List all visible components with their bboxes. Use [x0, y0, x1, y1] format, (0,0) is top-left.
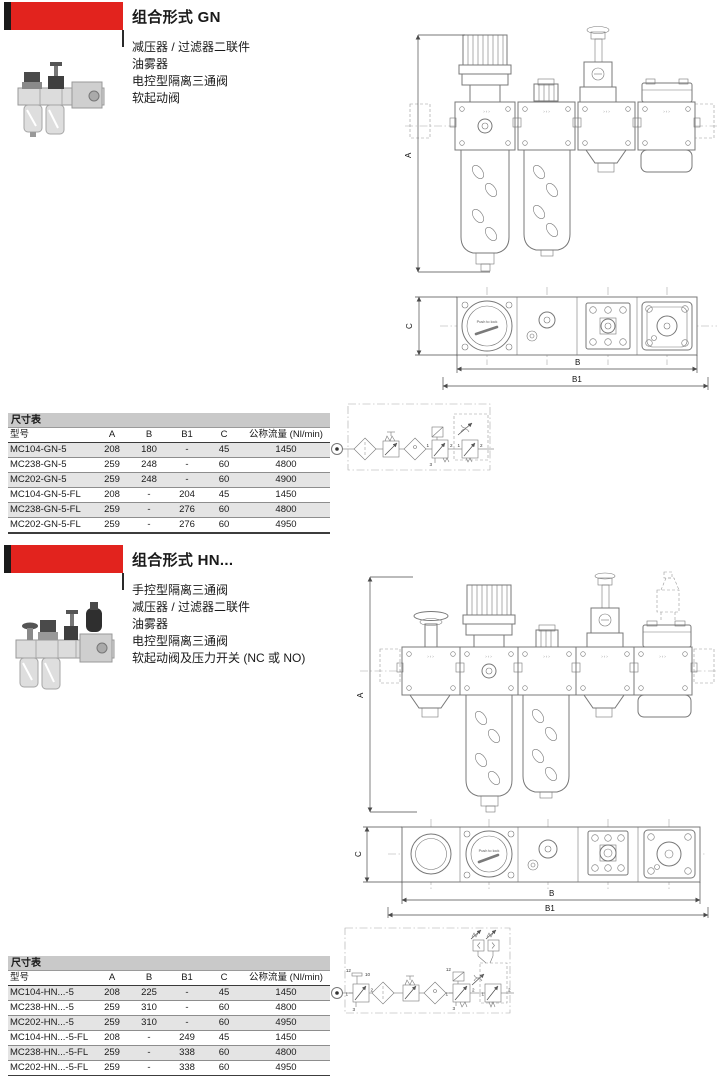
port-label: 1 — [445, 992, 448, 997]
cell: 60 — [206, 1061, 242, 1076]
pneumatic-circuit-gn: 1 2 3 1 2 — [328, 396, 496, 476]
cell: 60 — [206, 503, 242, 518]
section-title-hn: 组合形式 HN... — [132, 549, 233, 570]
table-caption: 尺寸表 — [8, 413, 330, 428]
regulator-symbol — [383, 432, 399, 457]
cell-model: MC202-GN-5-FL — [8, 518, 94, 534]
cell: 1450 — [242, 443, 330, 458]
cell: 225 — [130, 986, 168, 1001]
cell: 60 — [206, 1046, 242, 1061]
flow-direction-icon: ››› — [483, 109, 491, 114]
gn-dimension-table: 尺寸表 型号 A B B1 C 公称流量 (Nl/min) MC104-GN-5… — [8, 413, 330, 534]
table-row: MC202-GN-5 259 248 - 60 4900 — [8, 473, 330, 488]
description-line: 电控型隔离三通阀 — [132, 633, 305, 650]
cell: 248 — [130, 458, 168, 473]
cell: - — [130, 1046, 168, 1061]
cell-model: MC202-HN...-5-FL — [8, 1061, 94, 1076]
cell: 4800 — [242, 1046, 330, 1061]
cell: 259 — [94, 503, 130, 518]
cell-model: MC202-GN-5 — [8, 473, 94, 488]
cell: 310 — [130, 1016, 168, 1031]
regulator-symbol — [403, 976, 419, 1001]
col-header: 公称流量 (Nl/min) — [242, 971, 330, 986]
flow-direction-icon: ››› — [663, 109, 671, 114]
port-label: 10 — [365, 972, 371, 977]
flow-direction-icon: ››› — [659, 654, 667, 659]
cell: 259 — [94, 458, 130, 473]
cell: 208 — [94, 488, 130, 503]
cell: 4950 — [242, 1016, 330, 1031]
cell: - — [168, 443, 206, 458]
cell: 276 — [168, 503, 206, 518]
cell: 310 — [130, 1001, 168, 1016]
cell-model: MC104-HN...-5-FL — [8, 1031, 94, 1046]
col-header: 型号 — [8, 971, 94, 986]
description-line: 减压器 / 过滤器二联件 — [132, 39, 250, 56]
hn-dimension-table: 尺寸表 型号 A B B1 C 公称流量 (Nl/min) MC104-HN..… — [8, 956, 330, 1076]
table-header-row: 型号 A B B1 C 公称流量 (Nl/min) — [8, 971, 330, 986]
dimension-b1: B1 — [443, 375, 708, 390]
cell: - — [168, 986, 206, 1001]
table-row: MC238-HN...-5 259 310 - 60 4800 — [8, 1001, 330, 1016]
cell: 4950 — [242, 518, 330, 534]
dimension-a: A — [404, 35, 490, 272]
manual-valve-symbol: 12 10 1 2 3 — [345, 968, 373, 1012]
cell: 208 — [94, 443, 130, 458]
hn-front-view: ››› ››› ››› ››› ››› — [356, 572, 717, 812]
cell: 1450 — [242, 1031, 330, 1046]
flow-direction-icon: ››› — [543, 109, 551, 114]
hn-bottom-view: Push to lock — [355, 819, 708, 918]
description-line: 软起动阀及压力开关 (NC 或 NO) — [132, 650, 305, 667]
table-row: MC104-HN...-5 208 225 - 45 1450 — [8, 986, 330, 1001]
port-label: 2 — [450, 443, 453, 448]
product-photo-gn — [16, 56, 108, 138]
cell: - — [168, 1016, 206, 1031]
port-label: 2 — [472, 988, 475, 993]
banner-red-block — [11, 2, 123, 30]
col-header: B1 — [168, 428, 206, 443]
col-header: B — [130, 428, 168, 443]
gn-bottom-view: Push to lock — [405, 287, 717, 390]
gn-front-view: ››› ››› ››› ››› — [404, 27, 717, 273]
port-label: 12 — [446, 967, 452, 972]
banner-black-block — [4, 545, 11, 573]
dim-label-b1: B1 — [572, 375, 582, 384]
table-row: MC202-HN...-5-FL 259 - 338 60 4950 — [8, 1061, 330, 1076]
port-label: 1 — [457, 443, 460, 448]
cell: 4900 — [242, 473, 330, 488]
product-photo-hn — [14, 590, 118, 692]
dim-label-c: C — [355, 851, 363, 857]
cell: 1450 — [242, 488, 330, 503]
cell: 259 — [94, 1046, 130, 1061]
flow-direction-icon: ››› — [427, 654, 435, 659]
description-line: 减压器 / 过滤器二联件 — [132, 599, 305, 616]
valve-3-2-symbol: 1 2 3 — [426, 427, 453, 467]
cell: 249 — [168, 1031, 206, 1046]
table-row: MC238-HN...-5-FL 259 - 338 60 4800 — [8, 1046, 330, 1061]
dimension-b1: B1 — [388, 904, 708, 918]
col-header: B1 — [168, 971, 206, 986]
cell: 259 — [94, 518, 130, 534]
table-header-row: 型号 A B B1 C 公称流量 (Nl/min) — [8, 428, 330, 443]
description-line: 软起动阀 — [132, 90, 250, 107]
dim-label-b1: B1 — [545, 904, 555, 913]
col-header: B — [130, 971, 168, 986]
col-header: C — [206, 971, 242, 986]
lubricator-symbol — [424, 982, 446, 1004]
cell: 248 — [130, 473, 168, 488]
dimension-b: B — [457, 355, 697, 373]
cell: - — [130, 518, 168, 534]
cell: 60 — [206, 473, 242, 488]
banner-red-block — [11, 545, 123, 573]
cell-model: MC238-HN...-5-FL — [8, 1046, 94, 1061]
cell: - — [130, 503, 168, 518]
table-row: MC104-GN-5 208 180 - 45 1450 — [8, 443, 330, 458]
table-row: MC238-GN-5 259 248 - 60 4800 — [8, 458, 330, 473]
description-line: 电控型隔离三通阀 — [132, 73, 250, 90]
cell-model: MC104-GN-5-FL — [8, 488, 94, 503]
col-header: C — [206, 428, 242, 443]
cell: 60 — [206, 1001, 242, 1016]
col-header: A — [94, 971, 130, 986]
technical-drawing-gn: ››› ››› ››› ››› — [395, 22, 724, 394]
col-header: 型号 — [8, 428, 94, 443]
cell: 45 — [206, 986, 242, 1001]
cell-model: MC238-GN-5-FL — [8, 503, 94, 518]
banner-rule — [122, 573, 124, 590]
section-title-gn: 组合形式 GN — [132, 6, 221, 27]
cell: 259 — [94, 1061, 130, 1076]
port-label: 1 — [481, 992, 484, 997]
solenoid-valve-drawing — [584, 573, 624, 717]
cell-model: MC202-HN...-5 — [8, 1016, 94, 1031]
cell: 259 — [94, 1016, 130, 1031]
port-label: 2 — [508, 988, 511, 993]
flow-direction-icon: ››› — [543, 654, 551, 659]
cell-model: MC104-HN...-5 — [8, 986, 94, 1001]
port-label: 3 — [352, 1007, 355, 1012]
cell: - — [130, 1031, 168, 1046]
cell: - — [130, 488, 168, 503]
soft-start-symbol: 1 2 — [454, 414, 488, 462]
table-row: MC104-HN...-5-FL 208 - 249 45 1450 — [8, 1031, 330, 1046]
cell: - — [130, 1061, 168, 1076]
cell: 276 — [168, 518, 206, 534]
soft-start-pressure-switch-drawing — [638, 572, 691, 717]
cell: 208 — [94, 1031, 130, 1046]
pneumatic-circuit-hn: 12 10 1 2 3 12 1 — [326, 923, 516, 1018]
cell: 259 — [94, 1001, 130, 1016]
cell: 45 — [206, 443, 242, 458]
cell: 45 — [206, 1031, 242, 1046]
soft-start-symbol: 1 2 — [472, 963, 511, 1007]
lubricator-symbol — [404, 438, 426, 460]
table-row: MC238-GN-5-FL 259 - 276 60 4800 — [8, 503, 330, 518]
banner-black-block — [4, 2, 11, 30]
dimension-c: C — [405, 297, 457, 355]
cell: - — [168, 473, 206, 488]
port-label: 3 — [452, 1006, 455, 1011]
cell: 60 — [206, 458, 242, 473]
cell: 338 — [168, 1046, 206, 1061]
pressure-switch-symbols — [471, 930, 499, 963]
port-label: 3 — [429, 462, 432, 467]
port-label: 1 — [345, 992, 348, 997]
table-caption: 尺寸表 — [8, 956, 330, 971]
dim-label-b: B — [549, 889, 554, 898]
description-line: 手控型隔离三通阀 — [132, 582, 305, 599]
cell: 45 — [206, 488, 242, 503]
cell: 259 — [94, 473, 130, 488]
gauge-text: Push to lock — [477, 320, 498, 324]
banner-rule — [122, 30, 124, 47]
filter-regulator-drawing — [459, 35, 511, 271]
table-row: MC202-HN...-5 259 310 - 60 4950 — [8, 1016, 330, 1031]
port-label: 2 — [480, 443, 483, 448]
description-line: 油雾器 — [132, 616, 305, 633]
solenoid-valve-symbol: 12 1 2 3 — [445, 967, 475, 1011]
cell: 4800 — [242, 458, 330, 473]
table-row: MC104-GN-5-FL 208 - 204 45 1450 — [8, 488, 330, 503]
cell: 4950 — [242, 1061, 330, 1076]
cell: 204 — [168, 488, 206, 503]
cell: - — [168, 458, 206, 473]
dim-label-c: C — [405, 323, 414, 329]
flow-direction-icon: ››› — [601, 654, 609, 659]
dimension-b: B — [402, 882, 700, 904]
cell: 4800 — [242, 503, 330, 518]
col-header: A — [94, 428, 130, 443]
port-label: 12 — [346, 968, 352, 973]
cell: 60 — [206, 518, 242, 534]
flow-direction-icon: ››› — [603, 109, 611, 114]
port-label: 1 — [426, 443, 429, 448]
dim-label-a: A — [404, 152, 413, 158]
section-description-hn: 手控型隔离三通阀 减压器 / 过滤器二联件 油雾器 电控型隔离三通阀 软起动阀及… — [132, 582, 305, 667]
cell: 208 — [94, 986, 130, 1001]
cell: 4800 — [242, 1001, 330, 1016]
gauge-text: Push to lock — [479, 849, 500, 853]
dim-label-b: B — [575, 358, 580, 367]
section-description-gn: 减压器 / 过滤器二联件 油雾器 电控型隔离三通阀 软起动阀 — [132, 39, 250, 107]
cell: 180 — [130, 443, 168, 458]
cell-model: MC238-HN...-5 — [8, 1001, 94, 1016]
dim-label-a: A — [356, 692, 365, 698]
cell: 60 — [206, 1016, 242, 1031]
technical-drawing-hn: ››› ››› ››› ››› ››› — [355, 568, 724, 918]
cell-model: MC238-GN-5 — [8, 458, 94, 473]
flow-direction-icon: ››› — [485, 654, 493, 659]
cell-model: MC104-GN-5 — [8, 443, 94, 458]
dimension-c: C — [355, 827, 402, 882]
cell: 338 — [168, 1061, 206, 1076]
cell: 1450 — [242, 986, 330, 1001]
cell: - — [168, 1001, 206, 1016]
filter-regulator-drawing — [463, 585, 515, 812]
solenoid-valve-drawing — [580, 27, 626, 173]
table-row: MC202-GN-5-FL 259 - 276 60 4950 — [8, 518, 330, 534]
description-line: 油雾器 — [132, 56, 250, 73]
catalog-page: 组合形式 GN 减压器 / 过滤器二联件 油雾器 电控型隔离三通阀 软起动阀 — [0, 0, 724, 1076]
col-header: 公称流量 (Nl/min) — [242, 428, 330, 443]
